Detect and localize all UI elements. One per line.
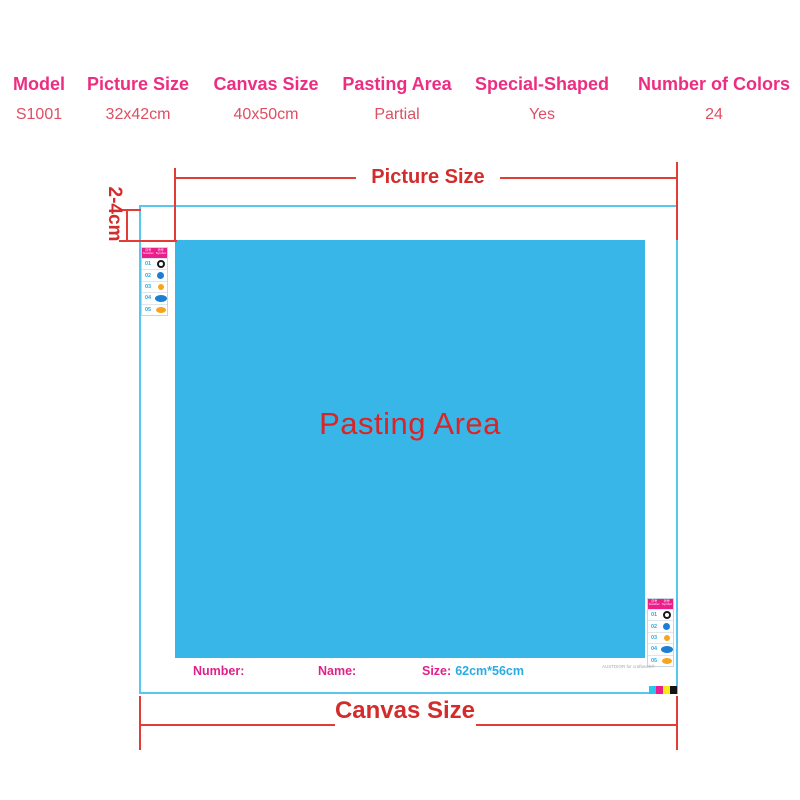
spec-header-num-colors: Number of Colors bbox=[638, 73, 790, 95]
name-label: Name: bbox=[318, 664, 356, 678]
spec-col-pasting-area: Pasting Area Partial bbox=[342, 73, 451, 125]
spec-value-num-colors: 24 bbox=[638, 105, 790, 125]
drill-symbol-icon bbox=[158, 284, 164, 290]
size-label: Size: bbox=[422, 664, 451, 678]
spec-value-pasting-area: Partial bbox=[342, 105, 451, 125]
drill-symbol-icon bbox=[157, 260, 165, 268]
size-field: Size:62cm*56cm bbox=[422, 664, 524, 678]
print-calibration-bar bbox=[649, 686, 677, 694]
spec-col-special-shaped: Special-Shaped Yes bbox=[475, 73, 609, 125]
margin-label: 2-4cm bbox=[102, 184, 126, 244]
color-legend-bottom-right: 序号Number 符号Symbol 01 02 03 04 05 bbox=[647, 598, 674, 667]
picture-size-label: Picture Size bbox=[348, 164, 508, 190]
legend-row: 01 bbox=[648, 609, 673, 620]
spec-header-picture-size: Picture Size bbox=[87, 73, 189, 95]
legend-row: 03 bbox=[142, 281, 167, 292]
canvas-size-tick-right bbox=[676, 696, 678, 750]
drill-symbol-icon bbox=[156, 307, 166, 313]
margin-bracket-vertical bbox=[126, 209, 128, 242]
legend-header: 序号Number 符号Symbol bbox=[142, 248, 167, 258]
color-legend-top-left: 序号Number 符号Symbol 01 02 03 04 05 bbox=[141, 247, 168, 316]
drill-symbol-icon bbox=[661, 646, 673, 653]
picture-size-line-right bbox=[500, 177, 676, 179]
picture-size-tick-left bbox=[174, 168, 176, 242]
size-value: 62cm*56cm bbox=[455, 664, 524, 678]
drill-symbol-icon bbox=[663, 623, 670, 630]
calibration-chip-yellow bbox=[663, 686, 670, 694]
spec-value-special-shaped: Yes bbox=[475, 105, 609, 125]
spec-col-canvas-size: Canvas Size 40x50cm bbox=[213, 73, 318, 125]
margin-bracket-bottom-tick bbox=[119, 240, 177, 242]
canvas-size-tick-left bbox=[139, 696, 141, 750]
calibration-chip-black bbox=[670, 686, 677, 694]
spec-header-pasting-area: Pasting Area bbox=[342, 73, 451, 95]
legend-header-number: 序号Number bbox=[142, 248, 155, 258]
legend-header-number: 序号Number bbox=[648, 599, 661, 609]
legend-row: 04 bbox=[648, 643, 673, 654]
product-infographic: Model S1001 Picture Size 32x42cm Canvas … bbox=[0, 0, 800, 800]
spec-header-model: Model bbox=[13, 73, 65, 95]
legend-header-symbol: 符号Symbol bbox=[661, 599, 674, 609]
number-label: Number: bbox=[193, 664, 244, 678]
legend-row: 01 bbox=[142, 258, 167, 269]
drill-symbol-icon bbox=[155, 295, 167, 302]
spec-header-canvas-size: Canvas Size bbox=[213, 73, 318, 95]
drill-symbol-icon bbox=[663, 611, 671, 619]
legend-row: 02 bbox=[142, 269, 167, 280]
legend-row: 04 bbox=[142, 292, 167, 303]
drill-symbol-icon bbox=[157, 272, 164, 279]
legend-header-symbol: 符号Symbol bbox=[155, 248, 168, 258]
spec-col-picture-size: Picture Size 32x42cm bbox=[87, 73, 189, 125]
spec-value-picture-size: 32x42cm bbox=[87, 105, 189, 125]
calibration-chip-magenta bbox=[656, 686, 663, 694]
legend-header: 序号Number 符号Symbol bbox=[648, 599, 673, 609]
fine-print: AUSTDIOR for craftwork® bbox=[602, 664, 662, 669]
calibration-chip-cyan bbox=[649, 686, 656, 694]
picture-size-line-left bbox=[175, 177, 356, 179]
pasting-area: Pasting Area bbox=[175, 240, 645, 658]
pasting-area-label: Pasting Area bbox=[175, 406, 645, 442]
canvas-size-line-right bbox=[476, 724, 677, 726]
spec-header-special-shaped: Special-Shaped bbox=[475, 73, 609, 95]
legend-row: 03 bbox=[648, 632, 673, 643]
drill-symbol-icon bbox=[664, 635, 670, 641]
drill-symbol-icon bbox=[662, 658, 672, 664]
spec-value-model: S1001 bbox=[13, 105, 65, 125]
spec-col-model: Model S1001 bbox=[13, 73, 65, 125]
canvas-size-label: Canvas Size bbox=[305, 697, 505, 725]
spec-col-num-colors: Number of Colors 24 bbox=[638, 73, 790, 125]
legend-row: 05 bbox=[142, 304, 167, 315]
legend-row: 02 bbox=[648, 620, 673, 631]
spec-value-canvas-size: 40x50cm bbox=[213, 105, 318, 125]
picture-size-tick-right bbox=[676, 162, 678, 240]
